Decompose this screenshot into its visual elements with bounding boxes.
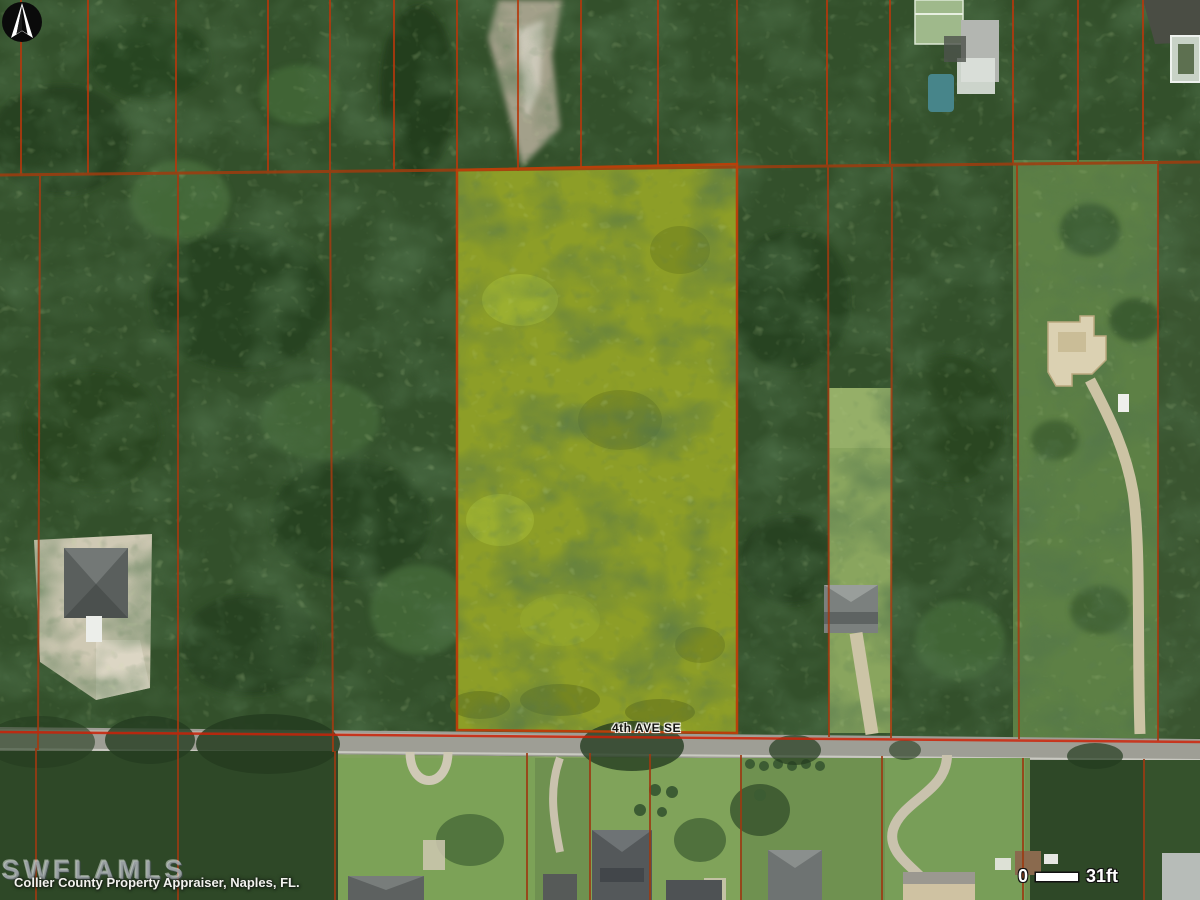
scale-bar-line <box>1036 873 1078 881</box>
scale-zero-label: 0 <box>1018 866 1028 887</box>
satellite-layer <box>0 0 1200 900</box>
aerial-map[interactable]: 4th AVE SE SWFLAMLS Collier County Prope… <box>0 0 1200 900</box>
swimming-pool <box>928 74 954 112</box>
scale-distance-label: 31ft <box>1086 866 1118 887</box>
car <box>86 616 102 642</box>
scale-bar: 0 31ft <box>1018 866 1118 887</box>
car <box>1118 394 1129 412</box>
north-arrow-icon <box>0 0 44 44</box>
